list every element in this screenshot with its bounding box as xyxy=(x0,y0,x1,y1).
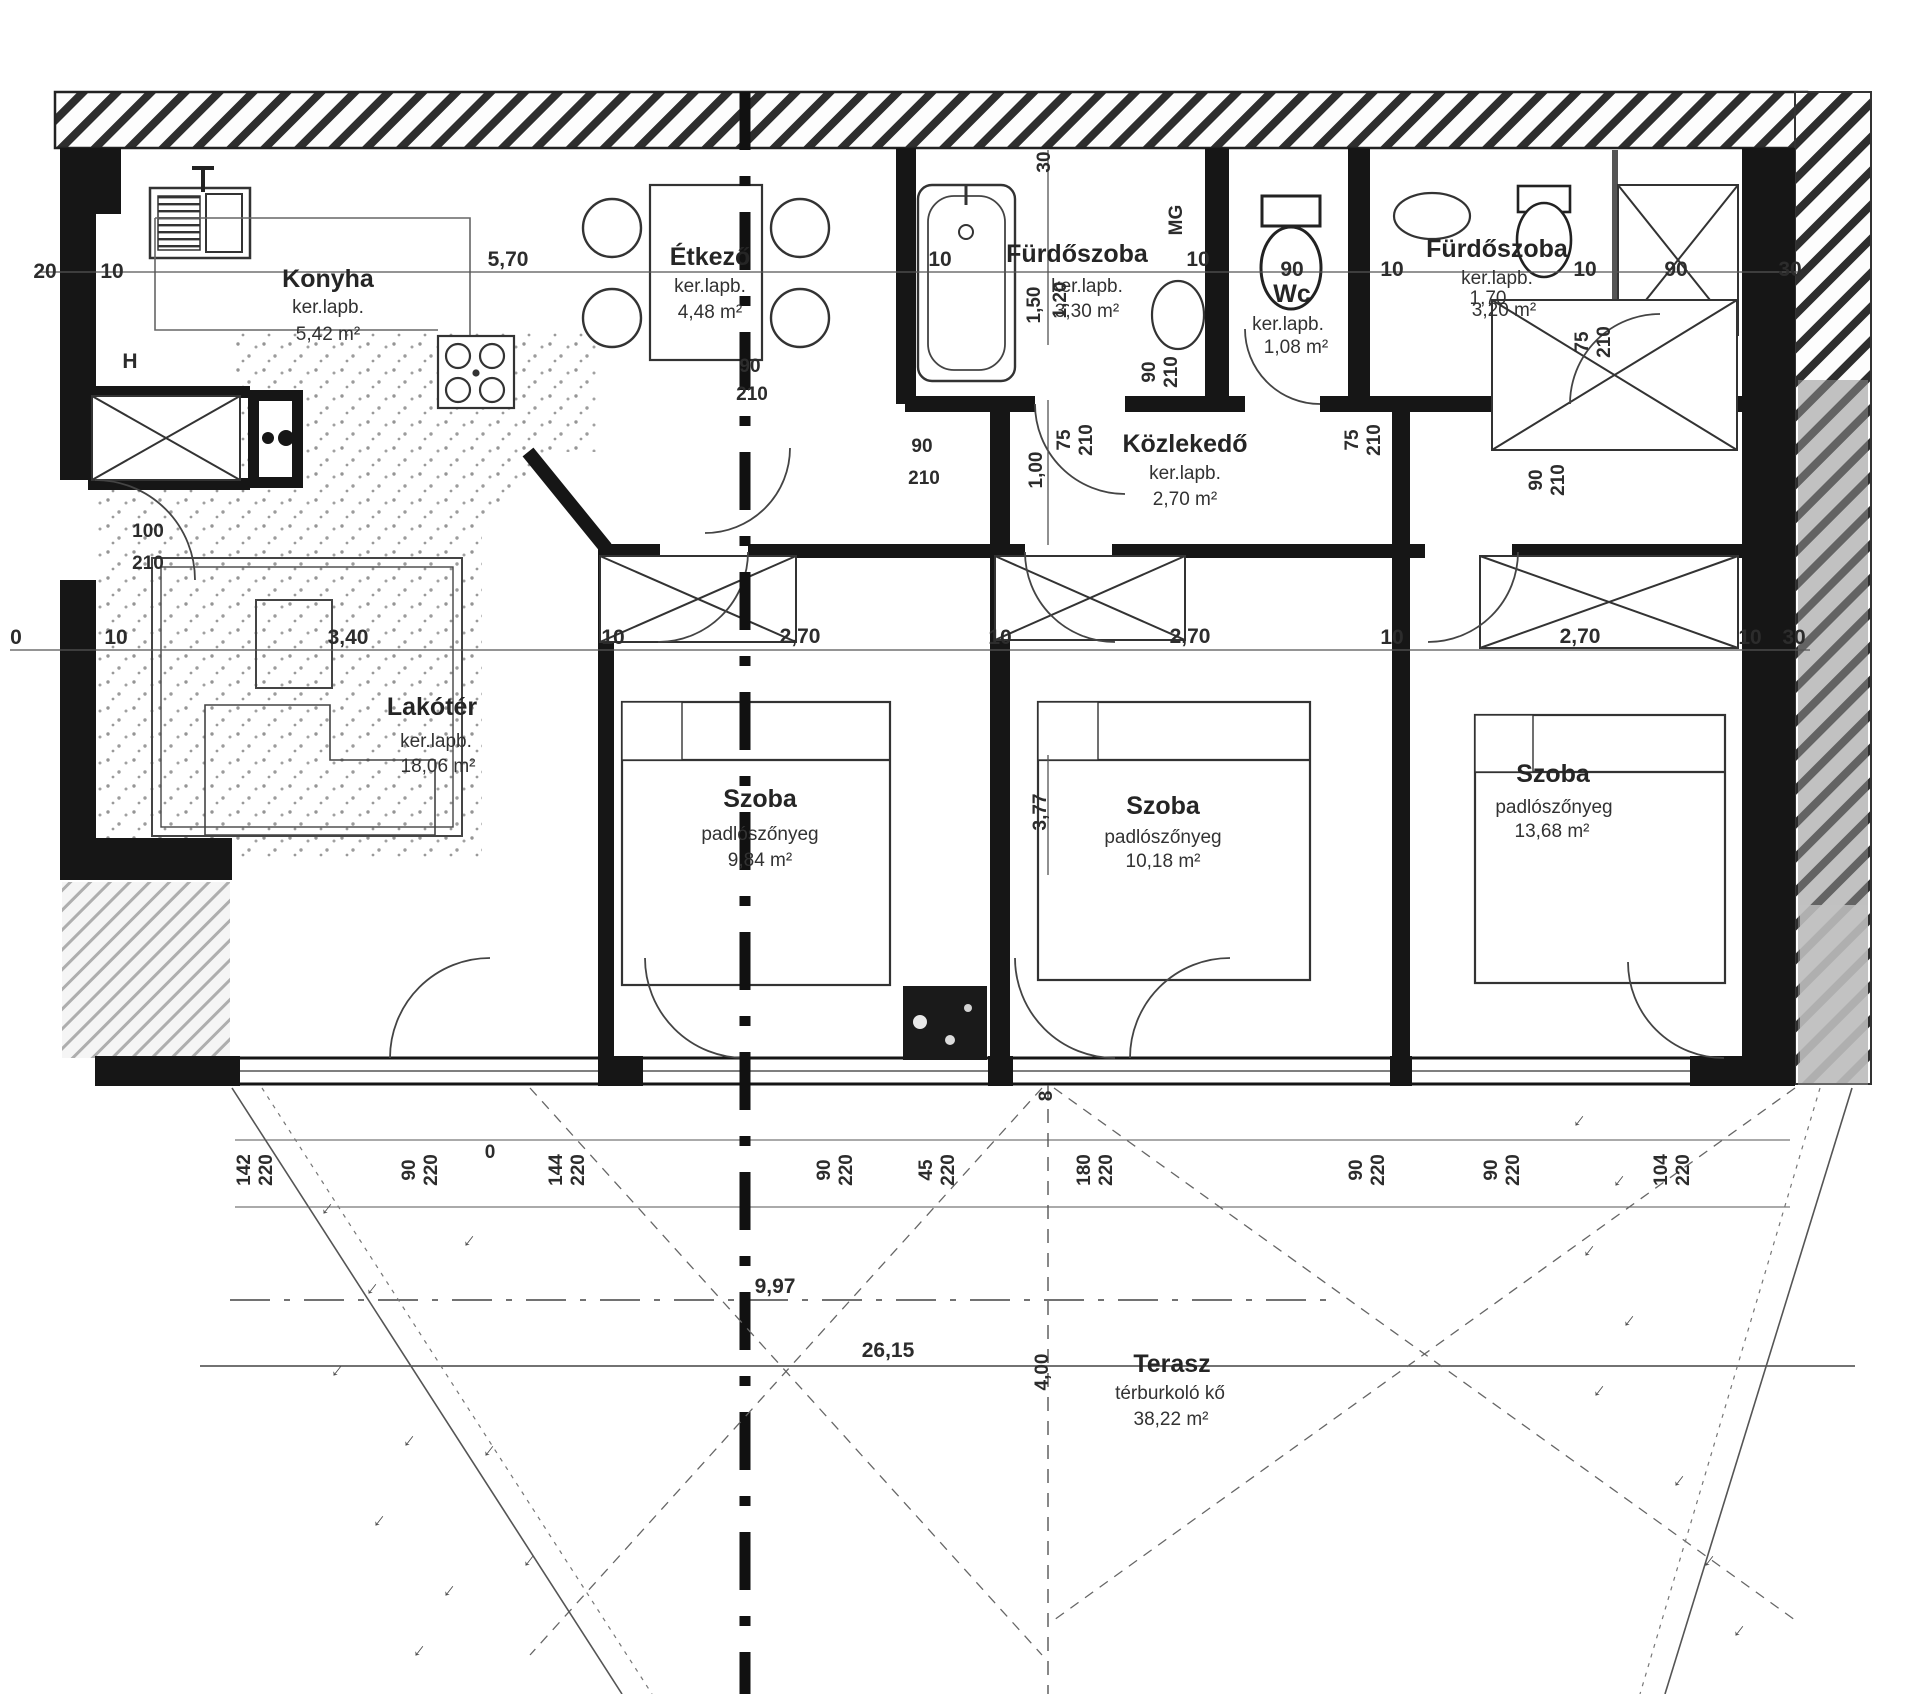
wall-hall-a1 xyxy=(905,396,1035,412)
dim-label: 90 xyxy=(1664,258,1687,281)
stove xyxy=(438,336,514,408)
grass-icon: ↓ xyxy=(1669,1469,1690,1492)
toilet xyxy=(1517,186,1571,277)
room-material: padlószőnyeg xyxy=(1104,827,1221,848)
dim-label: 10 xyxy=(1738,626,1761,649)
wall-wc-right xyxy=(1348,148,1370,404)
bottom-wall-pier-4 xyxy=(1390,1056,1412,1086)
grass-icon: ↓ xyxy=(362,1277,383,1300)
room-area: 1,08 m² xyxy=(1264,337,1328,358)
fireplace-speck xyxy=(964,1004,972,1012)
door-dim: 75 xyxy=(1572,331,1593,353)
grass-icon: ↓ xyxy=(409,1639,430,1662)
door-dim: 210 xyxy=(1594,326,1615,358)
window-dim: 220 xyxy=(421,1154,442,1186)
room-material: ker.lapb. xyxy=(674,276,746,297)
wardrobe-room3 xyxy=(1480,556,1738,648)
room-name: Közlekedő xyxy=(1122,430,1247,458)
window-dim: 8 xyxy=(1036,1091,1057,1102)
grass-icon: ↓ xyxy=(459,1229,480,1252)
door-dim: 75 xyxy=(1054,429,1075,451)
dim-label: 10 xyxy=(601,626,624,649)
door-dim: 210 xyxy=(132,553,164,574)
window-dim: 180 xyxy=(1074,1154,1095,1186)
wall-bath-wc-left xyxy=(1205,148,1229,404)
door-dim: 90 xyxy=(739,356,760,377)
wall-room2-room3 xyxy=(1392,404,1410,1064)
room-area: 9,84 m² xyxy=(728,850,792,871)
entry-appliance-knob xyxy=(278,430,294,446)
right-strip-shade-low xyxy=(1800,905,1868,1083)
wall-chamfer xyxy=(528,452,606,548)
room-area: 4,48 m² xyxy=(678,302,742,323)
grass-icon: ↓ xyxy=(327,1359,348,1382)
room-label-terasz: Terasz térburkoló kő 38,22 m² xyxy=(1115,1350,1225,1430)
door-dim: 100 xyxy=(132,521,164,542)
room-name: Lakótér xyxy=(387,693,478,721)
dim-label: 10 xyxy=(104,626,127,649)
top-exterior-wall xyxy=(55,92,1807,148)
fireplace-speck xyxy=(945,1035,955,1045)
grass-icon: ↓ xyxy=(1589,1379,1610,1402)
window-dim: 220 xyxy=(1096,1154,1117,1186)
dim-label: 2,70 xyxy=(780,625,821,648)
dim-label: 1,50 xyxy=(1024,287,1045,324)
grass-icon: ↓ xyxy=(519,1549,540,1572)
window-dim: 220 xyxy=(568,1154,589,1186)
grass-icon: ↓ xyxy=(1619,1309,1640,1332)
grass-icon: ↓ xyxy=(317,1197,338,1220)
window-dim: 90 xyxy=(399,1159,420,1180)
room-label-kozlekedo: Közlekedő ker.lapb. 2,70 m² xyxy=(1122,430,1247,510)
window-dim: 104 xyxy=(1651,1154,1672,1186)
kitchen-sink xyxy=(150,168,250,258)
washbasin xyxy=(1152,281,1204,349)
door-dim: 75 xyxy=(1342,429,1363,451)
dim-label: 5,70 xyxy=(488,248,529,271)
grass-icon: ↓ xyxy=(369,1509,390,1532)
room-name: Konyha xyxy=(282,265,375,293)
bottom-wall-pier-2 xyxy=(598,1056,643,1086)
room-name: Fürdőszoba xyxy=(1426,235,1569,263)
dim-label: 1,20 xyxy=(1050,282,1071,319)
wall-dining-bath xyxy=(896,148,916,404)
bathtub xyxy=(918,185,1015,381)
window-dim: 220 xyxy=(1368,1154,1389,1186)
entry-appliance-knob xyxy=(262,432,274,444)
dim-label: 10 xyxy=(928,248,951,271)
room-area: 13,68 m² xyxy=(1515,821,1590,842)
floor-plan-page: ↓ ↓ ↓ ↓ ↓ ↓ ↓ ↓ ↓ ↓ ↓ ↓ ↓ ↓ ↓ ↓ ↓ ↓ Kony… xyxy=(0,0,1920,1694)
bottom-wall-pier-3 xyxy=(988,1056,1013,1086)
washing-machine-label: MG xyxy=(1166,205,1187,236)
dim-label: 0 xyxy=(10,626,22,649)
room-material: ker.lapb. xyxy=(1252,314,1324,335)
window-dim: 45 xyxy=(916,1159,937,1181)
room-area: 38,22 m² xyxy=(1134,1409,1209,1430)
door-dim: 90 xyxy=(911,436,932,457)
wall-hall-a2 xyxy=(1125,396,1245,412)
door-dim: 210 xyxy=(1161,356,1182,388)
right-outer-wall xyxy=(1742,148,1795,1063)
room-material: padlószőnyeg xyxy=(701,824,818,845)
room-material: ker.lapb. xyxy=(1149,463,1221,484)
dim-label: 10 xyxy=(100,260,123,283)
window-dim: 144 xyxy=(546,1154,567,1186)
room-label-etkezo: Étkező ker.lapb. 4,48 m² xyxy=(670,242,751,323)
dim-label: 30 xyxy=(1782,626,1805,649)
dim-label: 9,97 xyxy=(755,1275,796,1298)
grass-icon: ↓ xyxy=(399,1429,420,1452)
chair-icon xyxy=(583,289,641,347)
grass-icon: ↓ xyxy=(1569,1109,1590,1132)
dim-label: 10 xyxy=(1380,626,1403,649)
room-material: ker.lapb. xyxy=(1461,268,1533,289)
room-material: térburkoló kő xyxy=(1115,1383,1225,1404)
room-material: padlószőnyeg xyxy=(1495,797,1612,818)
door-dim: 210 xyxy=(908,468,940,489)
room-area: 5,42 m² xyxy=(296,324,360,345)
room-name: Szoba xyxy=(1126,792,1201,820)
door-dim: 210 xyxy=(1364,424,1385,456)
grass-icon: ↓ xyxy=(1729,1619,1750,1642)
window-dim: 90 xyxy=(814,1159,835,1180)
grass-icon: ↓ xyxy=(479,1439,500,1462)
kitchen-corner-wall xyxy=(95,148,121,214)
dim-label: 26,15 xyxy=(862,1339,915,1362)
door-dim: 90 xyxy=(1526,469,1547,490)
dim-label: 90 xyxy=(1280,258,1303,281)
floor-plan-drawing: ↓ ↓ ↓ ↓ ↓ ↓ ↓ ↓ ↓ ↓ ↓ ↓ ↓ ↓ ↓ ↓ ↓ ↓ Kony… xyxy=(0,0,1920,1694)
door-dim: 1,00 xyxy=(1026,452,1047,489)
dim-label: 10 xyxy=(988,626,1011,649)
dim-label: 20 xyxy=(33,260,56,283)
door-dim: 90 xyxy=(1139,361,1160,382)
wardrobe-room2 xyxy=(995,556,1185,640)
grass-icon: ↓ xyxy=(1579,1239,1600,1262)
wardrobe-right-upper xyxy=(1492,300,1737,450)
dim-label: H xyxy=(122,350,137,373)
grass-icon: ↓ xyxy=(439,1579,460,1602)
chair-icon xyxy=(771,199,829,257)
door-dim: 210 xyxy=(1548,464,1569,496)
window-dim: 142 xyxy=(234,1154,255,1186)
dim-label: 1,70 xyxy=(1470,288,1507,309)
window-dim: 0 xyxy=(485,1142,496,1163)
window-dim: 220 xyxy=(938,1154,959,1186)
room-area: 18,06 m² xyxy=(401,756,476,777)
room-name: Terasz xyxy=(1133,1350,1210,1378)
wardrobe-room1 xyxy=(600,556,796,642)
dim-label: 3,77 xyxy=(1030,794,1051,831)
room-material: ker.lapb. xyxy=(292,297,364,318)
living-terrace-door-arc xyxy=(390,958,490,1058)
room-name: Szoba xyxy=(1516,760,1591,788)
left-wall-lower xyxy=(60,580,96,842)
window-dim: 220 xyxy=(256,1154,277,1186)
dim-label: 10 xyxy=(1573,258,1596,281)
window-dim: 220 xyxy=(1673,1154,1694,1186)
dim-label: 10 xyxy=(1380,258,1403,281)
left-wall-upper xyxy=(60,148,96,480)
grass-icon: ↓ xyxy=(1609,1169,1630,1192)
side-yard-hatch xyxy=(62,882,230,1058)
wall-room1-room2 xyxy=(990,404,1010,1064)
grass-icon: ↓ xyxy=(1699,1549,1720,1572)
dim-label: 2,70 xyxy=(1170,625,1211,648)
terrace-edge-left-2 xyxy=(262,1088,652,1694)
room-name: Fürdőszoba xyxy=(1006,240,1149,268)
window-dim: 90 xyxy=(1481,1159,1502,1180)
dim-label: 30 xyxy=(1034,151,1055,172)
door-dim: 210 xyxy=(1076,424,1097,456)
left-wall-corner xyxy=(60,838,232,880)
room-label-lakoter: Lakótér ker.lapb. 18,06 m² xyxy=(387,693,478,777)
washbasin xyxy=(1394,193,1470,239)
chair-icon xyxy=(583,199,641,257)
room-name: Szoba xyxy=(723,785,798,813)
room-area: 2,70 m² xyxy=(1153,489,1217,510)
bed-room3 xyxy=(1475,715,1725,983)
entry-wardrobe xyxy=(92,396,240,480)
dim-label: 3,40 xyxy=(328,626,369,649)
dim-label: 2,70 xyxy=(1560,625,1601,648)
room-name: Étkező xyxy=(670,242,751,271)
dim-label: 10 xyxy=(1186,248,1209,271)
room-area: 10,18 m² xyxy=(1126,851,1201,872)
window-dim: 220 xyxy=(836,1154,857,1186)
door-dim: 210 xyxy=(736,384,768,405)
room-name: Wc xyxy=(1273,280,1311,308)
room-material: ker.lapb. xyxy=(400,731,472,752)
chair-icon xyxy=(771,289,829,347)
dim-label: 4,00 xyxy=(1032,1354,1053,1391)
bottom-wall-pier-1 xyxy=(95,1056,240,1086)
dim-label: 30 xyxy=(1778,258,1801,281)
window-dim: 220 xyxy=(1503,1154,1524,1186)
window-dim: 90 xyxy=(1346,1159,1367,1180)
bottom-wall-pier-5 xyxy=(1690,1056,1795,1086)
fireplace-speck xyxy=(913,1015,927,1029)
